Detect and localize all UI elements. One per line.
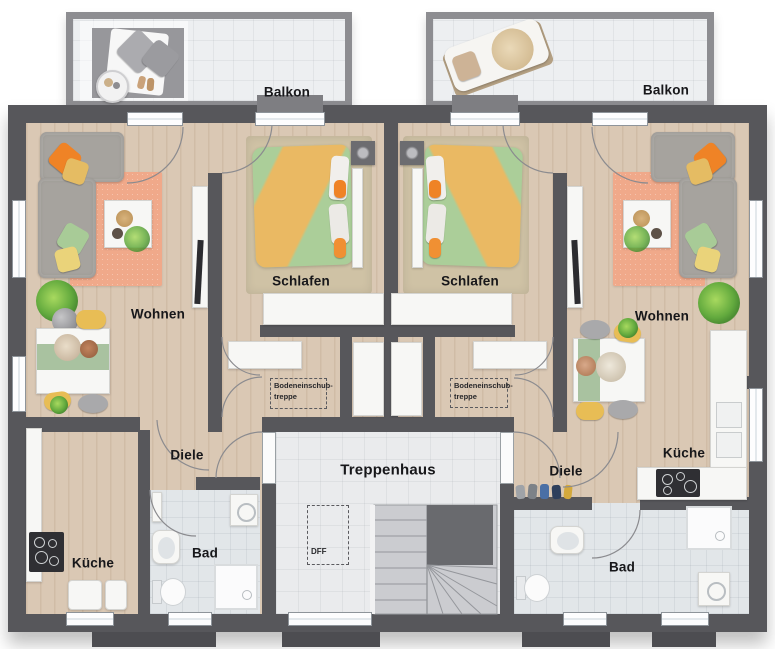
attic-hatch-left-label: Bodeneinschub- treppe <box>274 381 333 402</box>
entrance-door-right <box>500 432 514 484</box>
bath-shelf-left <box>152 492 162 522</box>
flower-bouquet <box>54 334 81 361</box>
attic-label-line2: treppe <box>454 392 513 403</box>
balcony-door-right <box>592 112 648 126</box>
stairwell-north-wall <box>262 417 514 432</box>
entrance-door-left <box>262 432 276 484</box>
wohnen-window-left <box>12 200 26 278</box>
washing-machine-left <box>230 494 258 526</box>
kitchen-sink-right <box>716 432 742 458</box>
flower-bowl <box>80 340 98 358</box>
closet-corridor-left <box>228 341 302 369</box>
washer-door <box>707 582 726 601</box>
basin-bowl <box>557 532 579 550</box>
dining-window-left <box>12 356 26 412</box>
toilet-bowl <box>160 578 186 606</box>
dining-chair-gray <box>608 400 638 419</box>
wall-schlafen-right-south <box>391 325 515 337</box>
headboard-left <box>352 168 363 268</box>
burner <box>663 486 672 495</box>
balcony-door-left <box>127 112 183 126</box>
exterior-stub <box>522 632 610 647</box>
stairwell-west-wall <box>262 484 276 614</box>
shower-drain <box>715 531 725 541</box>
closet-corridor-right <box>473 341 547 369</box>
toilet-left <box>152 576 184 606</box>
kueche-window-right <box>749 388 763 462</box>
schlafen-window-left <box>255 112 325 126</box>
shoe <box>515 485 525 500</box>
burner <box>684 480 697 493</box>
burner <box>34 537 45 548</box>
kitchen-sink-unit-left <box>68 580 102 610</box>
toilet-right <box>516 572 548 602</box>
table-cup <box>104 78 113 87</box>
room-label-diele-left: Diele <box>170 448 203 462</box>
closet-partywall-right <box>391 342 422 416</box>
table-tray <box>633 210 650 227</box>
wall-schlafen-left-south <box>260 325 384 337</box>
attic-hatch-right-label: Bodeneinschub- treppe <box>454 381 513 402</box>
shoe <box>540 484 549 499</box>
burner <box>676 472 685 481</box>
exterior-stub <box>282 632 380 647</box>
bad-window-right-b <box>661 612 709 626</box>
exterior-stub <box>92 632 216 647</box>
closet-partywall-left <box>353 342 384 416</box>
room-label-balkon-left: Balkon <box>264 85 310 99</box>
attic-label-line1: Bodeneinschub- <box>454 381 513 392</box>
table-vase <box>112 228 123 239</box>
chair-plant <box>50 396 68 414</box>
attic-label-line2: treppe <box>274 392 333 403</box>
kitchen-unit-left <box>105 580 127 610</box>
cooktop-left <box>29 532 64 572</box>
table-plant <box>624 226 650 252</box>
washbasin-left <box>152 530 180 564</box>
wall-bad-left-north <box>196 477 260 490</box>
table-cup <box>113 82 120 89</box>
bed-pillow-orange <box>334 180 346 198</box>
bad-window-left <box>168 612 212 626</box>
wardrobe-schlafen-left <box>263 293 384 325</box>
toilet-bowl <box>524 574 550 602</box>
kueche-window-left <box>66 612 114 626</box>
room-label-wohnen-right: Wohnen <box>635 309 689 323</box>
stairwell-window <box>288 612 372 626</box>
wall-lamp-right <box>400 141 424 165</box>
room-label-schlafen-left: Schlafen <box>272 274 330 288</box>
shower-left <box>214 564 258 610</box>
wall-corridor-right <box>423 337 435 417</box>
wohnen-window-right <box>749 200 763 278</box>
room-label-wohnen-left: Wohnen <box>131 307 185 321</box>
wall-wohnen-left-south <box>26 417 140 432</box>
schlafen-window-right <box>450 112 520 126</box>
washing-machine-right <box>698 572 730 606</box>
wardrobe-schlafen-right <box>391 293 512 325</box>
washbasin-right <box>550 526 584 554</box>
bed-pillow-orange <box>334 238 346 258</box>
wall-kueche-left-east <box>138 430 150 614</box>
dining-chair-yellow <box>576 402 604 420</box>
dining-chair-gray <box>580 320 610 339</box>
room-label-schlafen-right: Schlafen <box>441 274 499 288</box>
sandals <box>147 78 155 91</box>
shoe <box>527 484 537 500</box>
room-label-kueche-left: Küche <box>72 556 114 570</box>
burner <box>49 556 59 566</box>
burner <box>48 539 57 548</box>
room-label-treppenhaus: Treppenhaus <box>340 463 436 478</box>
room-label-diele-right: Diele <box>549 464 582 478</box>
bad-window-right-a <box>563 612 607 626</box>
exterior-stub <box>652 632 716 647</box>
wall-wohnen-schlafen-left <box>208 173 222 432</box>
dining-chair-gray <box>78 394 108 413</box>
shower-right <box>686 506 732 550</box>
room-label-balkon-right: Balkon <box>643 83 689 97</box>
roof-window-label: DFF <box>311 546 327 557</box>
floor-plan: Bodeneinschub- treppe Bodeneinschub- tre… <box>0 0 775 649</box>
room-label-bad-left: Bad <box>192 546 218 560</box>
attic-label-line1: Bodeneinschub- <box>274 381 333 392</box>
flower-bouquet <box>596 352 626 382</box>
burner <box>662 474 673 485</box>
washer-door <box>237 503 256 522</box>
bed-pillow-orange <box>429 180 441 198</box>
floor-plant-right <box>698 282 740 324</box>
shoe <box>563 485 572 500</box>
shoes-row <box>516 484 580 500</box>
wall-wohnen-schlafen-right <box>553 173 567 432</box>
stairwell-east-wall <box>500 484 514 614</box>
bed-pillow-orange <box>429 238 441 258</box>
burner <box>35 551 48 564</box>
dining-chair-yellow <box>76 310 106 329</box>
kitchen-sink-right <box>716 402 742 428</box>
room-label-bad-right: Bad <box>609 560 635 574</box>
room-label-kueche-right: Küche <box>663 446 705 460</box>
shoe <box>552 485 562 500</box>
window-sill <box>452 95 518 112</box>
wall-corridor-left <box>340 337 352 417</box>
table-vase <box>651 228 662 239</box>
shower-drain <box>242 590 252 600</box>
basin-bowl <box>158 537 175 559</box>
table-tray <box>116 210 133 227</box>
wall-lamp-left <box>351 141 375 165</box>
flower-bowl <box>576 356 596 376</box>
headboard-right <box>412 168 423 268</box>
table-plant <box>124 226 150 252</box>
